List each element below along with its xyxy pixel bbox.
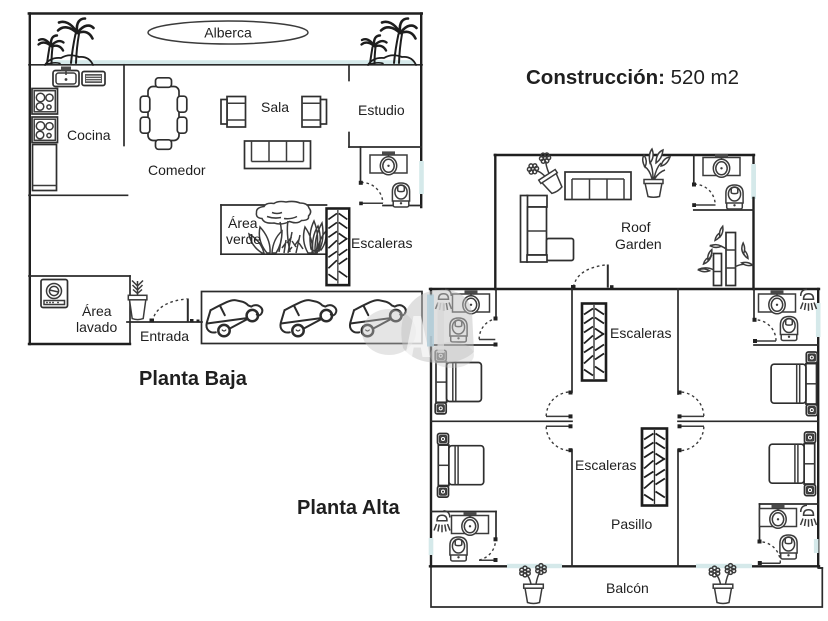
svg-text:Comedor: Comedor [148,162,206,178]
svg-text:Balcón: Balcón [606,580,649,596]
svg-text:Escaleras: Escaleras [575,457,636,473]
svg-text:Área: Área [228,215,258,231]
svg-text:verde: verde [226,231,261,247]
svg-text:lavado: lavado [76,319,117,335]
svg-text:Área: Área [82,303,112,319]
svg-text:Escaleras: Escaleras [351,235,412,251]
svg-text:Alberca: Alberca [204,25,252,41]
svg-text:Sala: Sala [261,99,289,115]
svg-text:Pasillo: Pasillo [611,516,652,532]
svg-text:Estudio: Estudio [358,102,405,118]
svg-text:Entrada: Entrada [140,328,189,344]
svg-text:Cocina: Cocina [67,127,111,143]
svg-text:Construcción: 520 m2: Construcción: 520 m2 [526,66,739,89]
svg-text:Garden: Garden [615,236,662,252]
svg-text:Planta Alta: Planta Alta [297,497,400,519]
svg-text:Escaleras: Escaleras [610,325,671,341]
svg-text:Roof: Roof [621,219,651,235]
svg-text:Planta Baja: Planta Baja [139,368,248,390]
